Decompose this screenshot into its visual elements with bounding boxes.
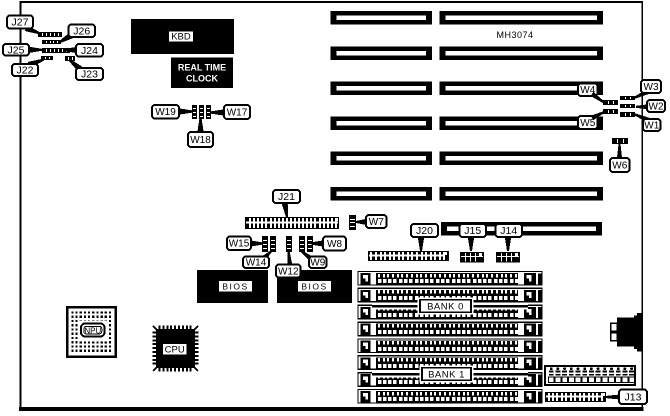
- svg-text:W9: W9: [310, 258, 325, 269]
- svg-text:J27: J27: [12, 17, 29, 29]
- svg-text:CLOCK: CLOCK: [186, 74, 218, 84]
- svg-text:W1: W1: [644, 120, 659, 131]
- svg-text:W3: W3: [644, 82, 659, 93]
- svg-text:NPU: NPU: [84, 326, 101, 335]
- svg-text:BIOS: BIOS: [301, 282, 327, 292]
- svg-text:J21: J21: [278, 191, 295, 203]
- svg-text:J25: J25: [8, 44, 25, 56]
- svg-text:W7: W7: [369, 217, 384, 228]
- svg-text:W18: W18: [190, 135, 211, 146]
- svg-text:REAL TIME: REAL TIME: [178, 63, 226, 73]
- svg-text:BIOS: BIOS: [222, 282, 248, 292]
- svg-text:J22: J22: [17, 65, 34, 77]
- svg-text:J14: J14: [500, 225, 517, 237]
- svg-text:W8: W8: [327, 239, 342, 250]
- svg-text:J13: J13: [625, 391, 642, 403]
- svg-text:W6: W6: [612, 160, 627, 171]
- svg-text:J24: J24: [81, 45, 98, 57]
- svg-text:W12: W12: [278, 266, 299, 277]
- svg-text:J26: J26: [73, 25, 90, 37]
- svg-text:J20: J20: [416, 225, 433, 237]
- svg-text:BANK 1: BANK 1: [428, 369, 465, 380]
- svg-text:W14: W14: [246, 258, 267, 269]
- svg-text:CPU: CPU: [165, 345, 185, 356]
- svg-text:MH3074: MH3074: [496, 30, 533, 40]
- svg-text:KBD: KBD: [171, 32, 191, 43]
- svg-text:W17: W17: [227, 107, 248, 118]
- svg-text:W19: W19: [155, 107, 176, 118]
- svg-text:W2: W2: [649, 101, 664, 112]
- svg-text:J15: J15: [464, 225, 481, 237]
- svg-text:J23: J23: [81, 69, 98, 81]
- svg-text:BANK 0: BANK 0: [427, 301, 464, 312]
- svg-text:W15: W15: [229, 239, 250, 250]
